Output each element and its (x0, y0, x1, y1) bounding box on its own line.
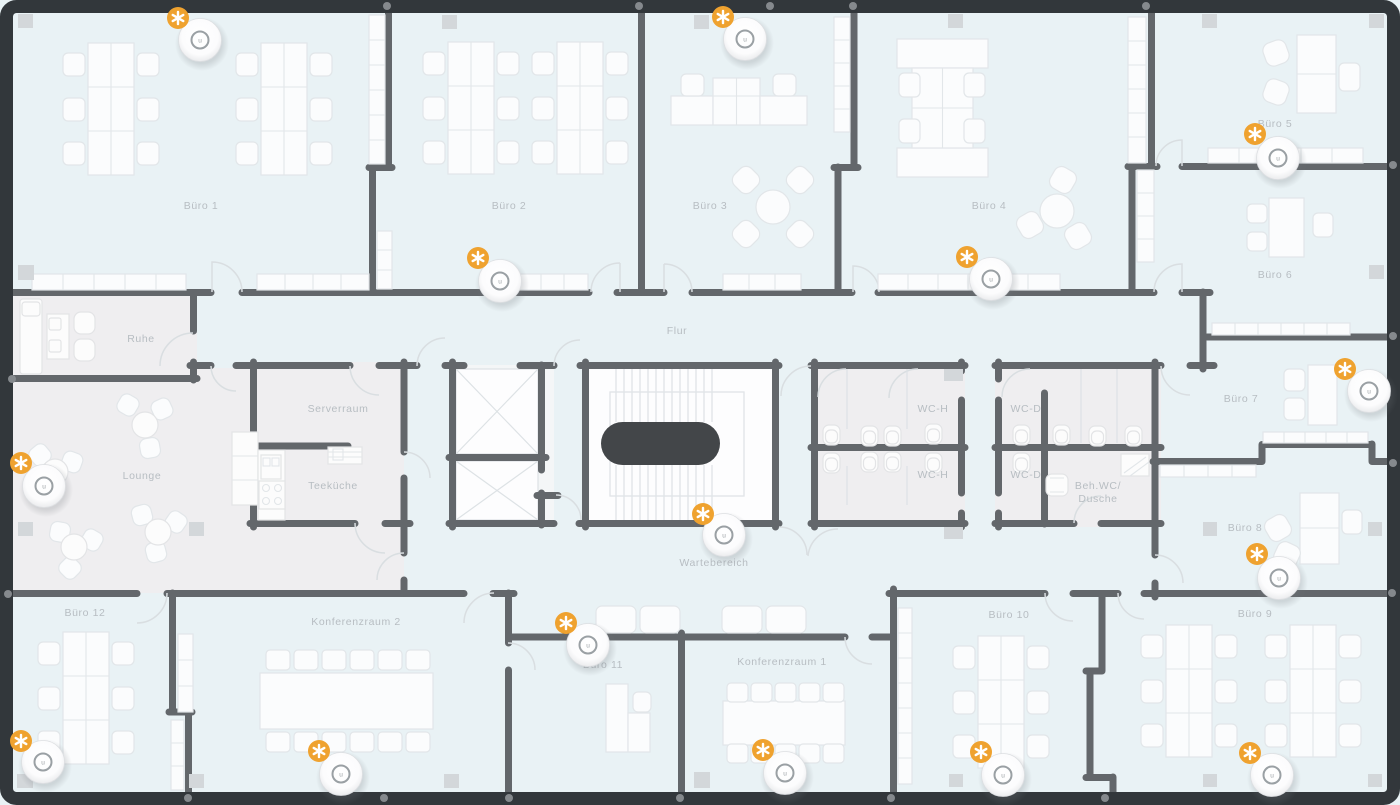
svg-text:Büro 7: Büro 7 (1224, 393, 1259, 405)
svg-text:Dusche: Dusche (1078, 493, 1117, 505)
svg-text:Lounge: Lounge (123, 470, 162, 482)
svg-text:Büro 8: Büro 8 (1228, 522, 1263, 534)
svg-text:Büro 6: Büro 6 (1258, 269, 1293, 281)
svg-text:Büro 10: Büro 10 (989, 609, 1030, 621)
svg-text:Büro 4: Büro 4 (972, 200, 1007, 212)
svg-text:Konferenzraum 2: Konferenzraum 2 (311, 616, 401, 628)
svg-text:WC-H: WC-H (918, 469, 949, 481)
svg-text:Büro 1: Büro 1 (184, 200, 219, 212)
svg-text:Teeküche: Teeküche (308, 480, 358, 492)
svg-text:WC-D: WC-D (1011, 469, 1042, 481)
svg-text:Beh.WC/: Beh.WC/ (1075, 480, 1121, 492)
svg-text:Ruhe: Ruhe (127, 333, 155, 345)
svg-text:Konferenzraum 1: Konferenzraum 1 (737, 656, 827, 668)
svg-text:Büro 3: Büro 3 (693, 200, 728, 212)
svg-text:Serverraum: Serverraum (308, 403, 369, 415)
svg-text:WC-D: WC-D (1011, 403, 1042, 415)
svg-text:Büro 12: Büro 12 (65, 607, 106, 619)
svg-text:Büro 9: Büro 9 (1238, 608, 1273, 620)
svg-text:Flur: Flur (667, 325, 687, 337)
svg-text:Büro 2: Büro 2 (492, 200, 527, 212)
svg-text:WC-H: WC-H (918, 403, 949, 415)
